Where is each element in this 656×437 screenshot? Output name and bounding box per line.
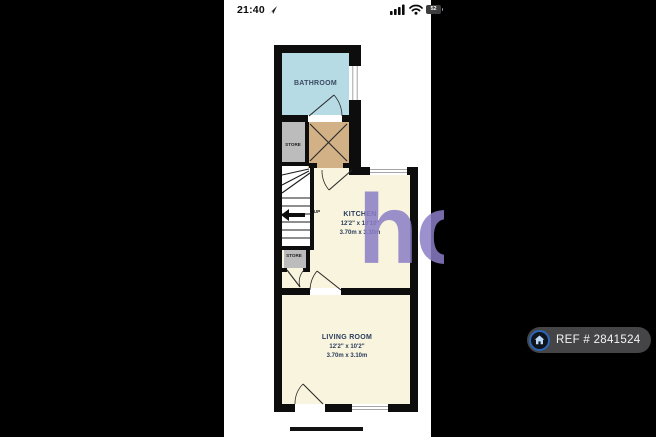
wall-segment: [349, 167, 370, 175]
wall-segment: [303, 268, 310, 272]
wall-segment: [282, 246, 310, 250]
ref-badge: REF # 2841524: [527, 327, 651, 353]
kitchen-dims-metric: 3.70m x 3.30m: [312, 229, 408, 238]
wall-segment: [342, 115, 349, 122]
living-room-label: LIVING ROOM: [290, 333, 404, 343]
wall-segment: [349, 53, 361, 66]
store-upper-label: STORE: [281, 142, 305, 149]
floorplan-image[interactable]: BATHROOM STORE STORE UP KITCHEN 12'2" x …: [0, 0, 656, 437]
wall-segment: [341, 288, 410, 295]
letterbox-background: 21:40 52: [0, 0, 656, 437]
kitchen-window: [370, 167, 407, 175]
wall-segment: [388, 404, 418, 412]
wall-segment: [282, 288, 310, 295]
living-room-label-block: LIVING ROOM 12'2" x 10'2" 3.70m x 3.10m: [290, 333, 404, 361]
bathroom-window: [349, 66, 361, 100]
wall-segment: [274, 404, 295, 412]
wall-segment: [305, 122, 309, 166]
kitchen-dims-imperial: 12'2" x 10'10": [312, 220, 408, 229]
store-lower-label: STORE: [282, 253, 306, 260]
wall-segment: [309, 163, 317, 168]
living-room-window: [352, 404, 388, 412]
scale-bar: [290, 427, 363, 431]
stairs-area: [282, 168, 310, 246]
bathroom-label: BATHROOM: [282, 79, 349, 89]
wall-segment: [282, 115, 308, 122]
wall-segment: [325, 404, 352, 412]
living-room-dims-imperial: 12'2" x 10'2": [290, 343, 404, 352]
ref-number: REF # 2841524: [556, 334, 640, 346]
wall-segment: [410, 167, 418, 412]
wall-segment: [282, 268, 287, 272]
wall-segment: [274, 45, 361, 53]
kitchen-label-block: KITCHEN 12'2" x 10'10" 3.70m x 3.30m: [312, 210, 408, 238]
house-icon: [529, 330, 550, 351]
wall-segment: [349, 100, 361, 167]
wall-segment: [343, 163, 349, 168]
wall-segment: [282, 162, 309, 166]
kitchen-label: KITCHEN: [312, 210, 408, 220]
living-room-dims-metric: 3.70m x 3.10m: [290, 352, 404, 361]
wall-segment: [274, 45, 282, 412]
